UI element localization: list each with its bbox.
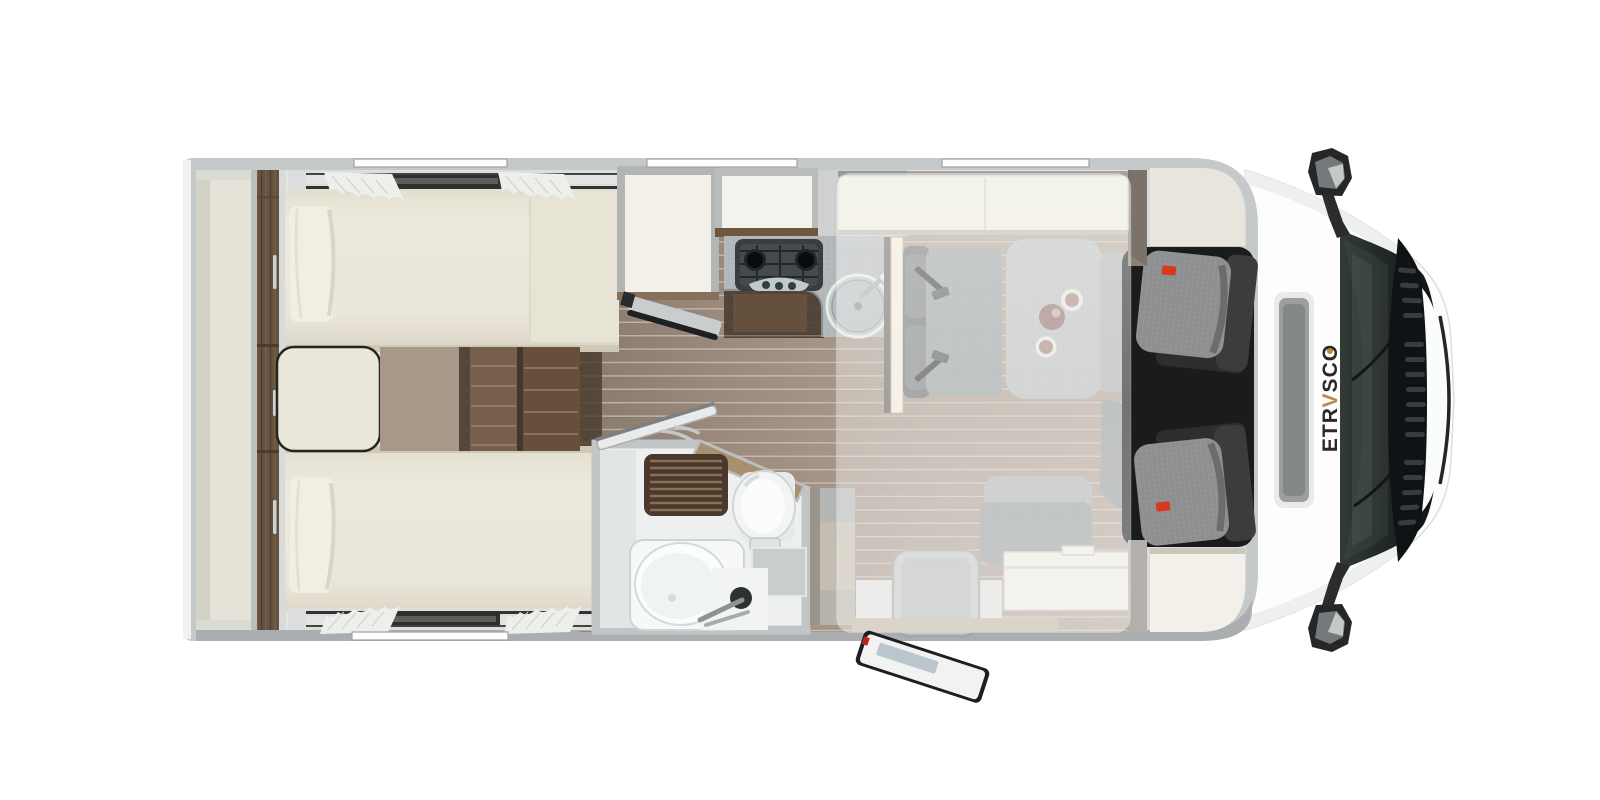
svg-text:ETRVSCO: ETRVSCO: [1319, 344, 1342, 452]
